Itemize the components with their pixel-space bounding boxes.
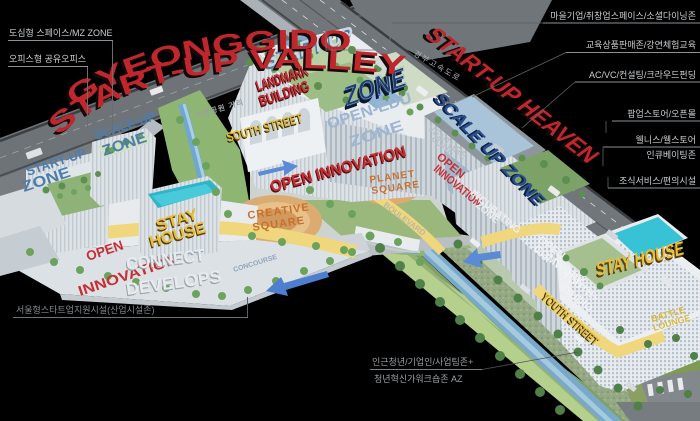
- svg-text:인큐베이팅존: 인큐베이팅존: [646, 150, 696, 160]
- svg-text:조식서비스/편의시설: 조식서비스/편의시설: [619, 175, 696, 186]
- svg-text:마을기업/취창업스페이스/소셜다이닝존: 마을기업/취창업스페이스/소셜다이닝존: [550, 11, 696, 21]
- svg-text:팝업스토어/오픈몰: 팝업스토어/오픈몰: [627, 108, 696, 119]
- svg-text:인근청년/기업인/사업팀존+: 인근청년/기업인/사업팀존+: [372, 356, 473, 367]
- svg-text:교육상품판매존/강연체험교육: 교육상품판매존/강연체험교육: [586, 40, 696, 50]
- svg-text:웰니스/웰스토어: 웰니스/웰스토어: [636, 135, 696, 145]
- svg-text:도심형 스페이스/MZ ZONE: 도심형 스페이스/MZ ZONE: [9, 28, 112, 38]
- svg-text:서울형스타트업지원시설(산업시설존): 서울형스타트업지원시설(산업시설존): [16, 305, 154, 315]
- svg-text:AC/VC/컨설팅/크라우드펀딩: AC/VC/컨설팅/크라우드펀딩: [589, 70, 696, 80]
- svg-text:청년혁신가워크숍존 AZ: 청년혁신가워크숍존 AZ: [374, 374, 463, 384]
- svg-text:오피스형 공유오피스: 오피스형 공유오피스: [9, 54, 86, 64]
